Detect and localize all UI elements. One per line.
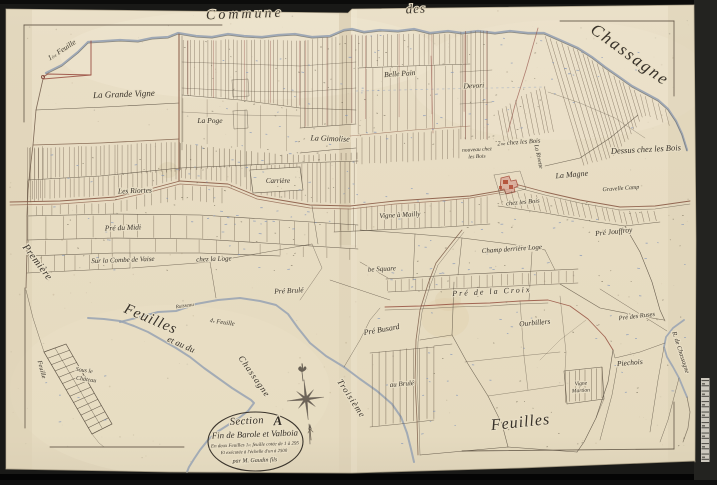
svg-text:La Gimolise: La Gimolise [309,133,350,143]
svg-text:La Poge: La Poge [196,116,223,125]
svg-text:les Bois: les Bois [468,154,486,161]
svg-text:Commune: Commune [206,6,284,24]
svg-text:chez la Loge: chez la Loge [196,254,232,263]
svg-text:Les Riortes: Les Riortes [117,185,152,195]
svg-text:Pré Brulé: Pré Brulé [273,285,304,296]
svg-text:A: A [272,413,283,429]
svg-text:Pré du Midi: Pré du Midi [104,222,142,232]
svg-text:Devori: Devori [462,80,484,90]
svg-text:be Square: be Square [368,264,396,273]
svg-text:Vigne: Vigne [575,381,588,388]
svg-text:Section: Section [229,415,264,428]
svg-text:Carrière: Carrière [266,177,290,185]
